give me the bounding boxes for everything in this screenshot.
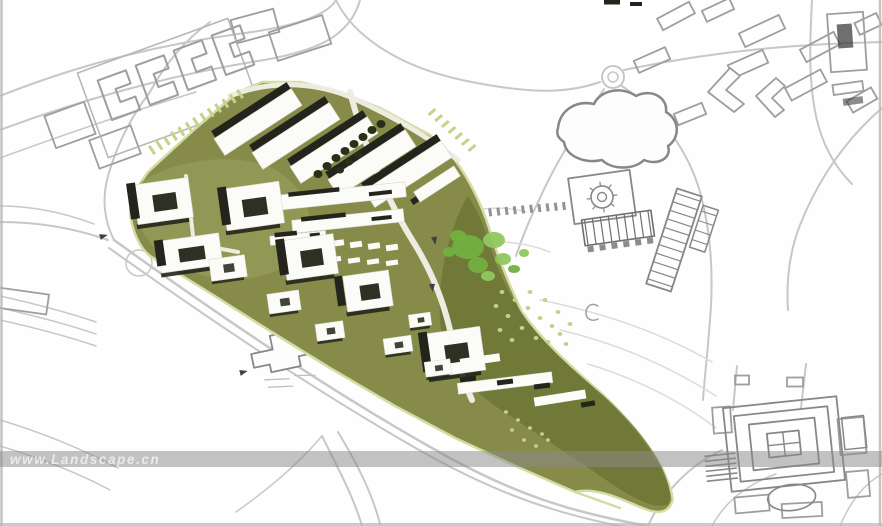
speckle bbox=[500, 290, 505, 294]
block-void bbox=[280, 298, 291, 307]
park-tree bbox=[443, 247, 455, 257]
dark-tree bbox=[332, 154, 341, 162]
park-tree bbox=[483, 232, 505, 248]
speckle bbox=[510, 338, 515, 342]
dark-tree bbox=[368, 126, 377, 134]
block-void bbox=[417, 317, 424, 323]
speckle bbox=[540, 432, 544, 435]
comb-dark-dot bbox=[599, 244, 606, 251]
speckle bbox=[558, 332, 563, 336]
comb-dark-dot bbox=[611, 242, 618, 249]
plaza-tick bbox=[600, 182, 601, 186]
dark-tree bbox=[341, 147, 350, 155]
speckle bbox=[498, 328, 503, 332]
dark-tree bbox=[350, 140, 359, 148]
block-void bbox=[435, 365, 444, 372]
dark-tree bbox=[323, 162, 332, 170]
speckle bbox=[520, 326, 525, 330]
top-edge-dash bbox=[604, 0, 620, 5]
speckle bbox=[550, 324, 555, 328]
block-void bbox=[223, 263, 235, 273]
masterplan-svg: www.Landscape.cn bbox=[0, 0, 882, 526]
dark-tree bbox=[314, 170, 323, 178]
comb-dark-dot bbox=[587, 246, 594, 253]
dark-tree bbox=[377, 120, 386, 128]
dark-tree bbox=[345, 159, 353, 166]
courtyard-void bbox=[359, 283, 380, 301]
speckle bbox=[568, 322, 573, 326]
context-building-dark bbox=[837, 24, 854, 49]
courtyard-void bbox=[300, 248, 324, 268]
plaza-tick bbox=[604, 208, 605, 212]
block-void bbox=[394, 341, 403, 348]
dark-tree bbox=[354, 152, 362, 159]
speckle bbox=[526, 306, 531, 310]
masterplan-image: www.Landscape.cn bbox=[0, 0, 882, 526]
speckle bbox=[546, 438, 550, 441]
plaza-tick bbox=[613, 195, 617, 196]
speckle bbox=[534, 336, 539, 340]
speckle bbox=[504, 410, 508, 413]
park-tree bbox=[519, 249, 529, 257]
speckle bbox=[522, 438, 526, 441]
park-tree bbox=[468, 257, 488, 273]
speckle bbox=[546, 340, 551, 344]
speckle bbox=[513, 298, 518, 302]
courtyard-void bbox=[242, 197, 269, 218]
speckle bbox=[516, 418, 520, 421]
park-tree bbox=[508, 265, 520, 273]
watermark-text: www.Landscape.cn bbox=[10, 452, 160, 467]
speckle bbox=[534, 444, 538, 447]
watermark-layer: www.Landscape.cn bbox=[0, 451, 882, 467]
comb-dark-dot bbox=[647, 237, 654, 244]
dark-tree bbox=[336, 167, 344, 174]
park-tree bbox=[450, 230, 466, 242]
speckle bbox=[556, 310, 561, 314]
park-tree bbox=[481, 271, 495, 281]
speckle bbox=[510, 428, 514, 431]
park-tree bbox=[495, 253, 511, 265]
speckle bbox=[506, 314, 511, 318]
speckle bbox=[528, 426, 532, 429]
speckle bbox=[538, 316, 543, 320]
comb-dark-dot bbox=[635, 239, 642, 246]
block-void bbox=[326, 327, 335, 335]
dark-tree bbox=[359, 133, 368, 141]
speckle bbox=[528, 290, 533, 294]
top-edge-dash bbox=[630, 2, 642, 6]
speckle bbox=[543, 298, 548, 302]
courtyard-void bbox=[152, 192, 178, 212]
comb-dark-dot bbox=[623, 241, 630, 248]
speckle bbox=[494, 304, 499, 308]
plaza-tick bbox=[587, 199, 591, 200]
speckle bbox=[564, 342, 569, 346]
